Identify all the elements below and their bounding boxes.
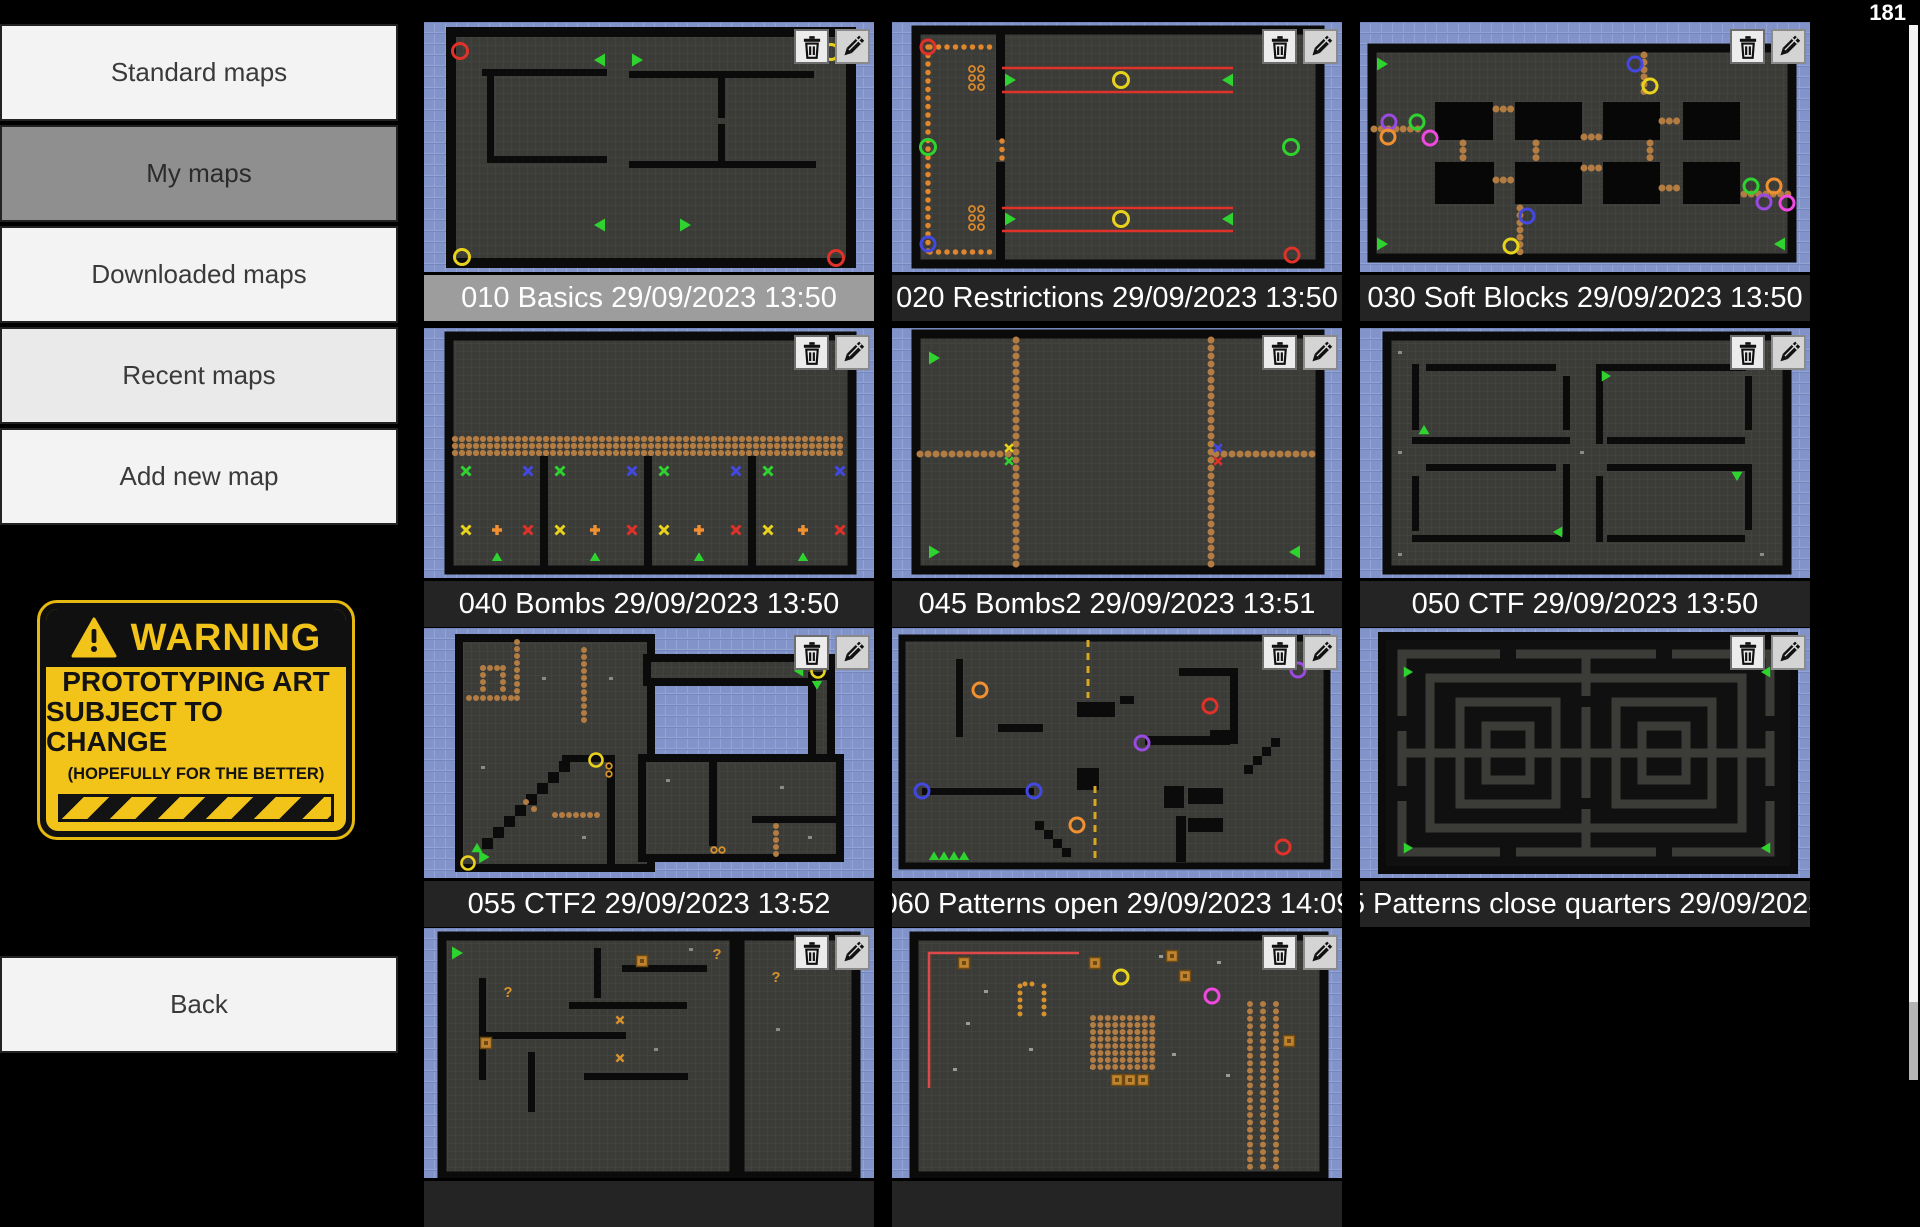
warning-line-1: PROTOTYPING ART xyxy=(62,667,330,697)
map-tile-010-basics: 010 Basics 29/09/2023 13:50 xyxy=(424,22,874,321)
delete-map-button[interactable] xyxy=(794,29,829,64)
map-thumbnail[interactable] xyxy=(892,328,1342,578)
delete-map-button[interactable] xyxy=(1730,635,1765,670)
map-tile-060-patterns-open: 060 Patterns open 29/09/2023 14:09 xyxy=(892,628,1342,927)
map-tile-065-patterns-close-quarters: 065 Patterns close quarters 29/09/2023… xyxy=(1360,628,1810,927)
edit-map-button[interactable] xyxy=(835,335,870,370)
delete-map-button[interactable] xyxy=(794,335,829,370)
map-title xyxy=(424,1181,874,1227)
map-title: 050 CTF 29/09/2023 13:50 xyxy=(1360,581,1810,627)
map-thumbnail[interactable] xyxy=(1360,328,1810,578)
warning-line-3: (HOPEFULLY FOR THE BETTER) xyxy=(68,766,325,784)
map-tile-020-restrictions: 020 Restrictions 29/09/2023 13:50 xyxy=(892,22,1342,321)
map-thumbnail[interactable]: ? ? ? xyxy=(424,928,874,1178)
edit-map-button[interactable] xyxy=(835,635,870,670)
sidebar-item-recent-maps[interactable]: Recent maps xyxy=(0,327,398,424)
delete-map-button[interactable] xyxy=(1730,335,1765,370)
trash-icon xyxy=(1267,940,1293,966)
edit-map-button[interactable] xyxy=(835,935,870,970)
map-title: 060 Patterns open 29/09/2023 14:09 xyxy=(892,881,1342,927)
pencil-icon xyxy=(1307,339,1334,366)
pencil-icon xyxy=(839,33,866,60)
map-thumbnail[interactable] xyxy=(424,628,874,878)
pencil-icon xyxy=(1307,939,1334,966)
sidebar-item-add-new-map[interactable]: Add new map xyxy=(0,428,398,525)
map-counter: 181 xyxy=(1869,0,1906,26)
sidebar-item-downloaded-maps[interactable]: Downloaded maps xyxy=(0,226,398,323)
sidebar-item-standard-maps[interactable]: Standard maps xyxy=(0,24,398,121)
map-title: 065 Patterns close quarters 29/09/2023… xyxy=(1360,881,1810,927)
trash-icon xyxy=(799,340,825,366)
pencil-icon xyxy=(1775,33,1802,60)
delete-map-button[interactable] xyxy=(1730,29,1765,64)
map-thumbnail[interactable] xyxy=(1360,628,1810,878)
scrollbar-thumb[interactable] xyxy=(1909,1002,1918,1080)
delete-map-button[interactable] xyxy=(1262,29,1297,64)
delete-map-button[interactable] xyxy=(1262,635,1297,670)
warning-triangle-icon xyxy=(71,617,117,659)
map-tile-050-ctf: 050 CTF 29/09/2023 13:50 xyxy=(1360,328,1810,627)
map-title: 030 Soft Blocks 29/09/2023 13:50 xyxy=(1360,275,1810,321)
map-title: 045 Bombs2 29/09/2023 13:51 xyxy=(892,581,1342,627)
edit-map-button[interactable] xyxy=(835,29,870,64)
svg-text:?: ? xyxy=(712,946,721,963)
map-thumbnail[interactable] xyxy=(424,22,874,272)
map-title: 055 CTF2 29/09/2023 13:52 xyxy=(424,881,874,927)
trash-icon xyxy=(1735,640,1761,666)
trash-icon xyxy=(1267,34,1293,60)
back-button[interactable]: Back xyxy=(0,956,398,1053)
map-thumbnail[interactable] xyxy=(424,328,874,578)
warning-line-2: SUBJECT TO CHANGE xyxy=(46,697,346,757)
delete-map-button[interactable] xyxy=(794,635,829,670)
warning-title: WARNING xyxy=(131,617,322,660)
map-title: 020 Restrictions 29/09/2023 13:50 xyxy=(892,275,1342,321)
map-title: 040 Bombs 29/09/2023 13:50 xyxy=(424,581,874,627)
trash-icon xyxy=(1735,340,1761,366)
edit-map-button[interactable] xyxy=(1303,335,1338,370)
trash-icon xyxy=(799,940,825,966)
map-thumbnail[interactable] xyxy=(892,22,1342,272)
warning-hazard-stripes xyxy=(58,794,334,822)
map-thumbnail[interactable] xyxy=(892,628,1342,878)
map-tile-055-ctf2: 055 CTF2 29/09/2023 13:52 xyxy=(424,628,874,927)
delete-map-button[interactable] xyxy=(794,935,829,970)
edit-map-button[interactable] xyxy=(1771,335,1806,370)
map-title: 010 Basics 29/09/2023 13:50 xyxy=(424,275,874,321)
map-thumbnail[interactable] xyxy=(892,928,1342,1178)
pencil-icon xyxy=(1307,639,1334,666)
trash-icon xyxy=(799,34,825,60)
svg-text:?: ? xyxy=(771,969,780,986)
scrollbar-track[interactable] xyxy=(1909,25,1918,1080)
sidebar-item-my-maps[interactable]: My maps xyxy=(0,125,398,222)
map-tile-030-soft-blocks: 030 Soft Blocks 29/09/2023 13:50 xyxy=(1360,22,1810,321)
map-tile-row4-col1: ? ? ? xyxy=(424,928,874,1227)
delete-map-button[interactable] xyxy=(1262,335,1297,370)
delete-map-button[interactable] xyxy=(1262,935,1297,970)
edit-map-button[interactable] xyxy=(1771,635,1806,670)
edit-map-button[interactable] xyxy=(1303,935,1338,970)
map-tile-040-bombs: 040 Bombs 29/09/2023 13:50 xyxy=(424,328,874,627)
pencil-icon xyxy=(839,339,866,366)
map-tile-row4-col2 xyxy=(892,928,1342,1227)
pencil-icon xyxy=(839,639,866,666)
trash-icon xyxy=(1735,34,1761,60)
trash-icon xyxy=(1267,640,1293,666)
trash-icon xyxy=(799,640,825,666)
pencil-icon xyxy=(839,939,866,966)
pencil-icon xyxy=(1775,339,1802,366)
edit-map-button[interactable] xyxy=(1303,635,1338,670)
warning-sign: WARNING PROTOTYPING ART SUBJECT TO CHANG… xyxy=(37,600,355,840)
map-tile-045-bombs2: 045 Bombs2 29/09/2023 13:51 xyxy=(892,328,1342,627)
map-title xyxy=(892,1181,1342,1227)
trash-icon xyxy=(1267,340,1293,366)
pencil-icon xyxy=(1307,33,1334,60)
pencil-icon xyxy=(1775,639,1802,666)
edit-map-button[interactable] xyxy=(1771,29,1806,64)
svg-text:?: ? xyxy=(503,984,512,1001)
edit-map-button[interactable] xyxy=(1303,29,1338,64)
map-thumbnail[interactable] xyxy=(1360,22,1810,272)
